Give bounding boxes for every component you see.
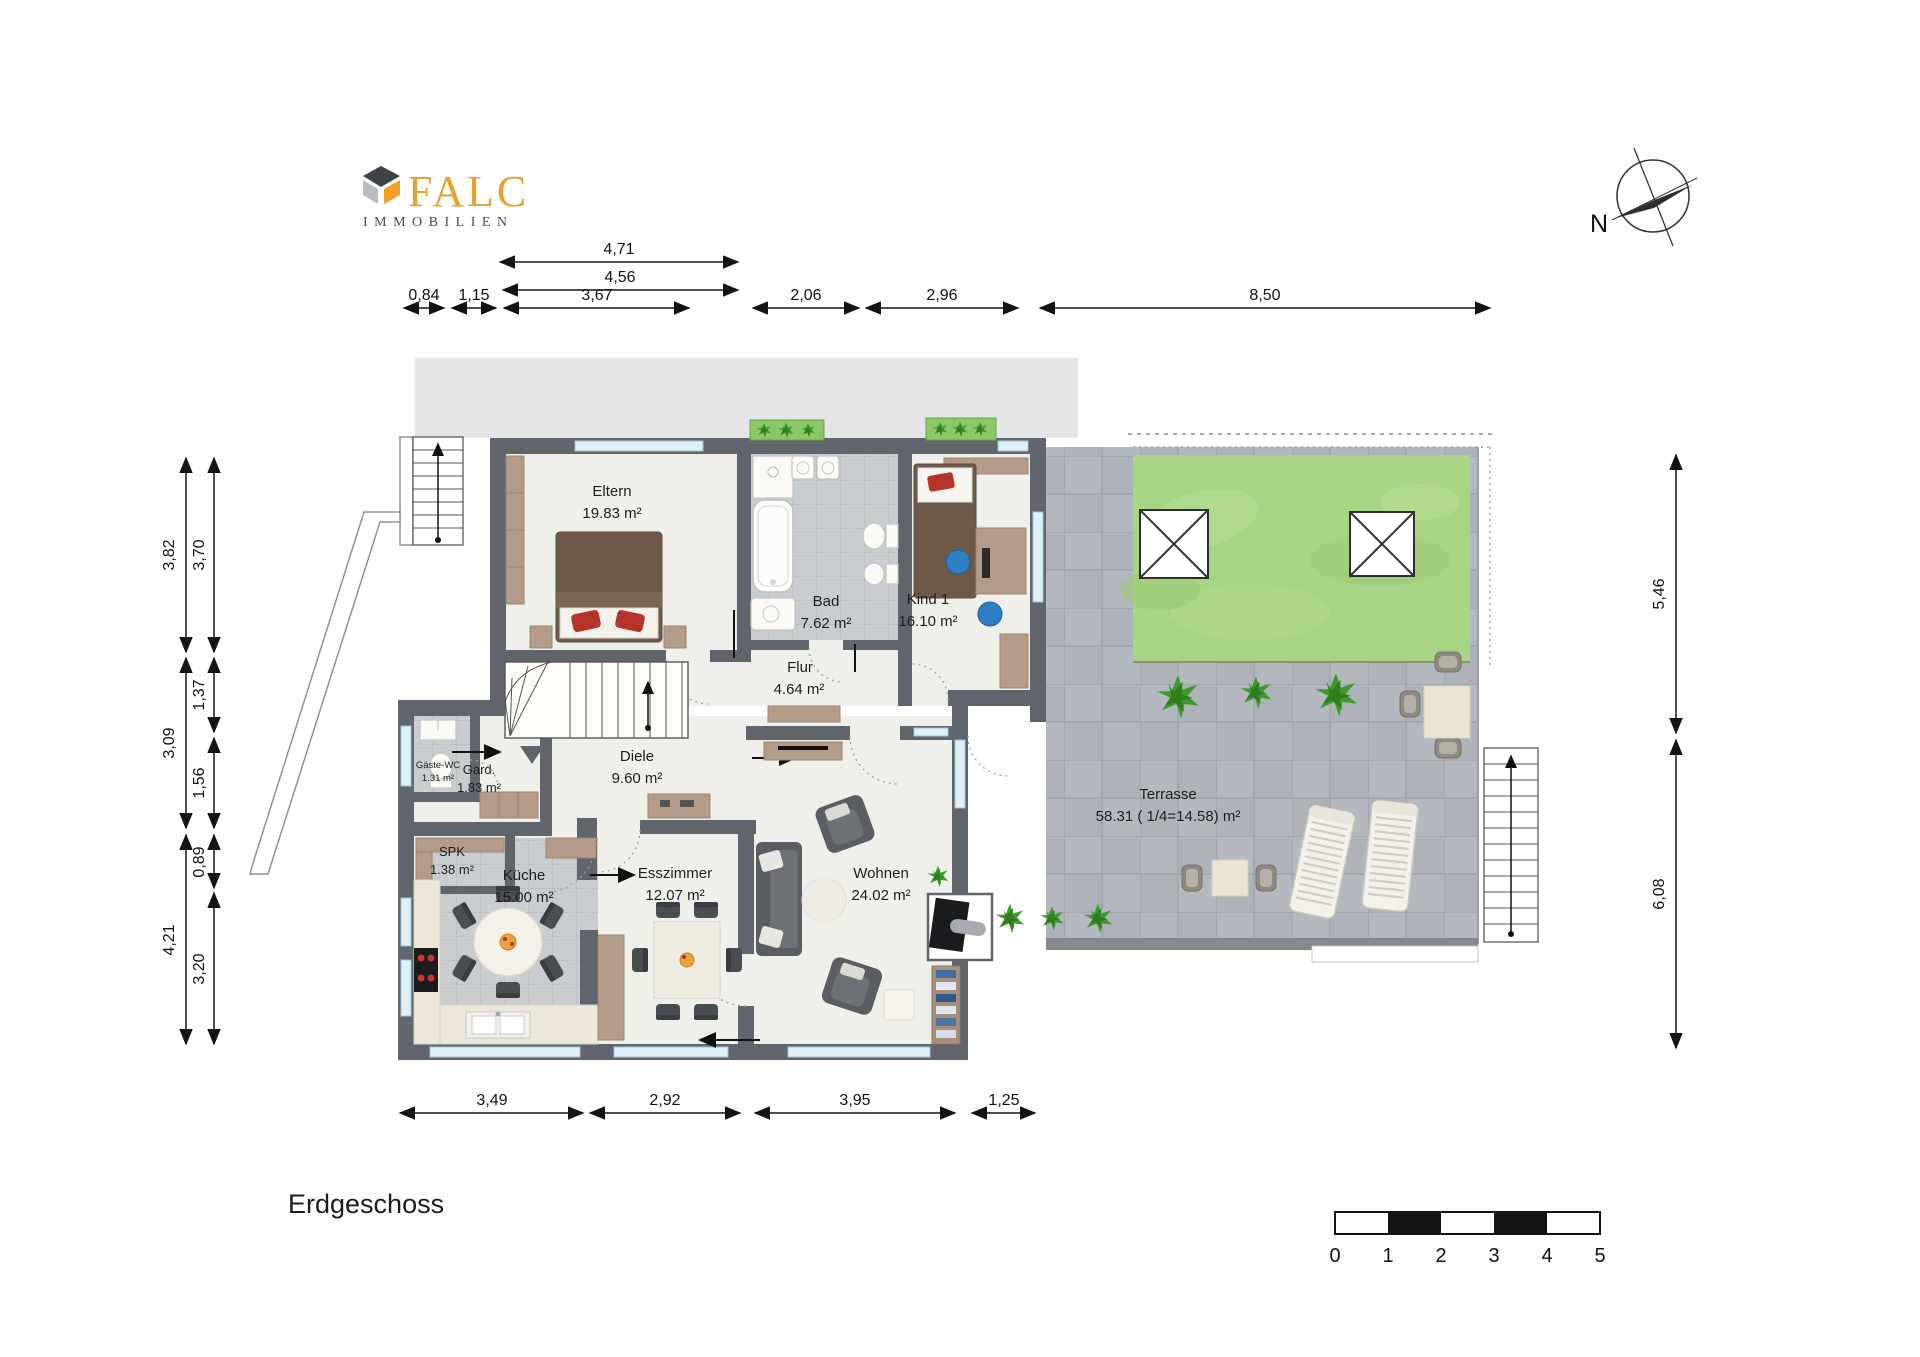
label-flur: Flur [787,659,813,676]
nightstand-right [664,626,686,648]
floorplan-page: Eltern 19.83 m² Bad 7.62 m² Kind 1 16.10… [0,0,1920,1357]
scale-tick-2: 2 [1435,1245,1446,1267]
brand-logo: FALC IMMOBILIEN [363,166,529,230]
window-wohnen-south [788,1047,930,1057]
terrace-door-north [914,728,948,736]
terrace-door-east [955,740,965,808]
label-gard-area: 1.83 m² [457,780,502,795]
tv [778,746,828,750]
dim-top-456: 4,56 [604,269,635,286]
window-eltern-top [575,441,703,451]
dim-top-206: 2,06 [790,287,821,304]
dim-top-084: 0,84 [408,287,439,304]
bush [996,904,1025,934]
label-bad-area: 7.62 m² [801,615,852,632]
dim-left-320: 3,20 [191,953,208,984]
window-kind-east [1033,512,1043,602]
toilet [863,523,898,549]
bad-sink [751,598,795,630]
small-table [1212,860,1248,896]
dim-left-089: 0,89 [191,846,208,877]
furniture-gard [480,792,538,818]
label-eltern: Eltern [592,483,631,500]
label-kueche: Küche [503,867,546,884]
dim-left-370: 3,70 [191,539,208,570]
scale-tick-0: 0 [1329,1245,1340,1267]
compass: N [1590,148,1697,246]
label-esszimmer-area: 12.07 m² [645,887,704,904]
terrace-step [1312,946,1478,962]
label-diele: Diele [620,748,654,765]
monitor [982,548,990,578]
window-kueche-west-1 [401,898,411,946]
bed-fold [556,592,662,608]
dryer [817,456,839,479]
terrace-table [1424,686,1470,738]
scale-bar-frame [1335,1212,1600,1234]
bathtub [753,500,793,592]
label-wohnen-area: 24.02 m² [851,887,910,904]
dresser [1000,634,1028,688]
retaining-wall [250,512,400,874]
compass-north-label: N [1590,210,1608,238]
compass-needle [1616,185,1692,218]
washer [792,456,814,479]
fruit-bowl [680,953,694,967]
dim-left-156: 1,56 [191,767,208,798]
dim-left-309: 3,09 [161,727,178,758]
dim-left-382: 3,82 [161,539,178,570]
sideboard [648,794,710,818]
tall-cabinet [598,935,624,1040]
window-esszimmer-south [614,1047,728,1057]
scale-tick-3: 3 [1488,1245,1499,1267]
falc-house-icon [363,166,400,204]
hall-sideboard [768,706,840,722]
dim-top-471: 4,71 [603,241,634,258]
label-spk: SPK [439,844,465,859]
side-table [884,990,914,1020]
scale-tick-1: 1 [1382,1245,1393,1267]
dim-bottom-349: 3,49 [476,1092,507,1109]
label-gaeste-wc: Gäste-WC [416,760,460,771]
fireplace [928,894,992,960]
dim-top-115: 1,15 [458,287,489,304]
label-kind1-area: 16.10 m² [898,613,957,630]
window-kind-top [998,441,1028,451]
blue-chair [978,602,1002,626]
label-kueche-area: 15.00 m² [494,889,553,906]
kitchen-cabinet [546,838,596,858]
label-gard: Gard. [463,762,496,777]
dim-left-137: 1,37 [191,679,208,710]
dim-top-296: 2,96 [926,287,957,304]
brand-subtitle: IMMOBILIEN [363,215,514,230]
nightstand-left [530,626,552,648]
label-eltern-area: 19.83 m² [582,505,641,522]
label-esszimmer: Esszimmer [638,865,712,882]
tv-board [764,742,842,760]
label-kind1: Kind 1 [907,591,950,608]
label-gaeste-wc-area: 1.31 m² [422,773,454,784]
dimensions-bottom: 3,49 2,92 3,95 1,25 [400,1092,1035,1113]
dimensions-right: 5,46 6,08 [1651,455,1676,1048]
round-rug [802,878,846,922]
dimensions-left: 3,82 3,09 4,21 3,70 1,37 1,56 0,89 3,20 [161,458,214,1044]
scale-tick-4: 4 [1541,1245,1552,1267]
scale-bar: 0 1 2 3 4 5 [1329,1212,1605,1267]
label-wohnen: Wohnen [853,865,909,882]
label-terrasse-area: 58.31 ( 1/4=14.58) m² [1096,808,1241,825]
dim-top-367: 3,67 [581,287,612,304]
label-bad: Bad [813,593,840,610]
skylight-2 [1350,512,1414,576]
dimensions-top: 4,71 4,56 0,84 1,15 3,67 2,06 2,96 8,50 [404,241,1490,308]
page-title: Erdgeschoss [288,1189,444,1219]
dim-left-421: 4,21 [161,924,178,955]
window-kueche-south [430,1047,580,1057]
dim-right-608: 6,08 [1651,878,1668,909]
brand-name: FALC [408,167,529,216]
exterior-stairs-right [1484,748,1538,942]
dim-right-546: 5,46 [1651,578,1668,609]
terrace-coffee-set [1182,860,1276,896]
label-diele-area: 9.60 m² [612,770,663,787]
bidet [864,563,898,585]
dim-top-850: 8,50 [1249,287,1280,304]
label-terrasse: Terrasse [1139,786,1197,803]
desk-chair [946,550,970,574]
dim-bottom-125: 1,25 [988,1092,1019,1109]
scale-tick-5: 5 [1594,1245,1605,1267]
dim-bottom-292: 2,92 [649,1092,680,1109]
gard-wardrobe [480,792,538,818]
window-wc-west [401,726,411,786]
floorplan-drawing: Eltern 19.83 m² Bad 7.62 m² Kind 1 16.10… [0,0,1920,1357]
window-kueche-west-2 [401,960,411,1016]
stove [414,948,438,992]
label-flur-area: 4.64 m² [774,681,825,698]
skylight-1 [1140,510,1208,578]
fruit-bowl [500,934,516,950]
dim-bottom-395: 3,95 [839,1092,870,1109]
exterior-stairs-left [400,437,463,545]
label-spk-area: 1.38 m² [430,862,475,877]
